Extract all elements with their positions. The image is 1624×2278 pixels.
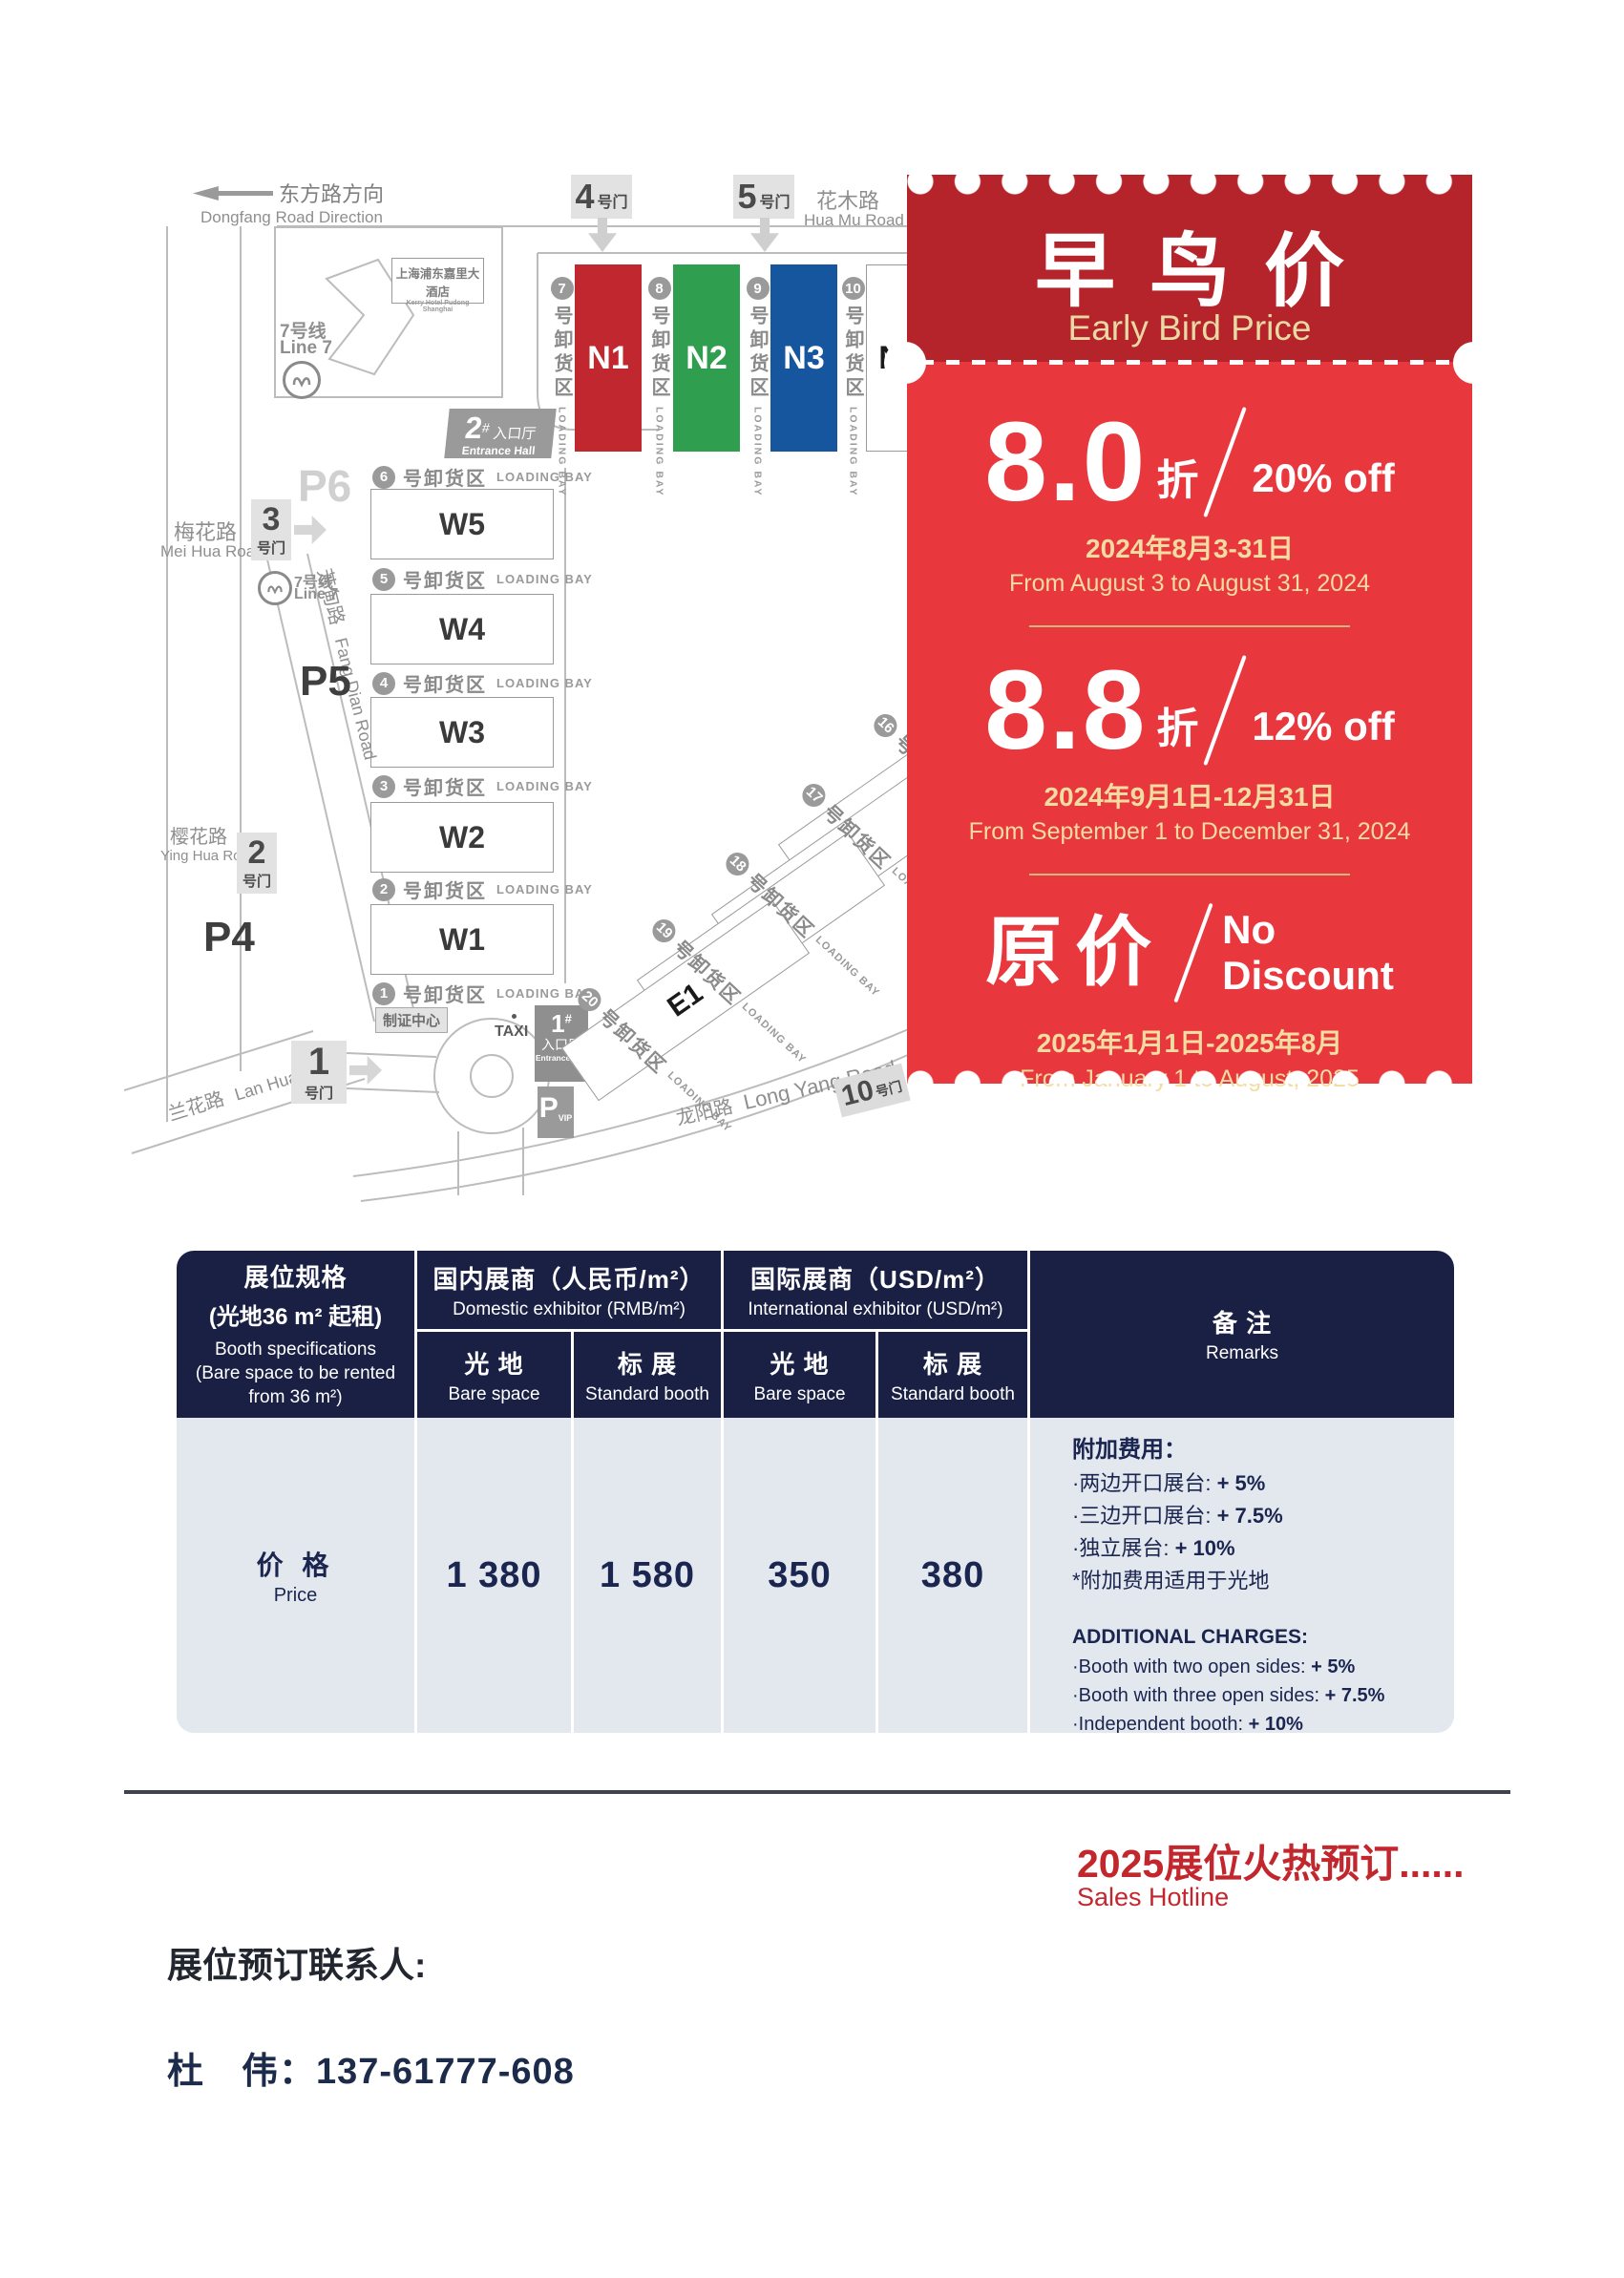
loading-bay-3-number: 3 [372, 775, 395, 798]
huamu-road-label-en: Hua Mu Road [804, 211, 904, 230]
venue-map: 东方路方向 Dongfang Road Direction 4号门 5号门 花木… [124, 134, 979, 1203]
sales-hotline-title-zh: 2025展位火热预订...... [1077, 1831, 1465, 1888]
metro-logo-icon [258, 571, 292, 605]
sub-intl-standard: 标 展 Standard booth [878, 1332, 1030, 1418]
gate-1: 1号门 [291, 1041, 347, 1104]
remarks-zh-note: *附加费用适用于光地 [1072, 1565, 1270, 1597]
tier-2-date-zh: 2024年9月1日-12月31日 [907, 778, 1472, 815]
early-bird-title-en: Early Bird Price [907, 308, 1472, 348]
standard-en: Standard booth [891, 1384, 1015, 1405]
intl-en: International exhibitor (USD/m²) [748, 1299, 1002, 1320]
contact-phone: 杜 伟：137-61777-608 [167, 2041, 575, 2094]
gate-10-suffix: 号门 [874, 1077, 904, 1102]
tier-1-discount: 8.0 [984, 406, 1147, 518]
loading-bay-4-number: 4 [372, 672, 395, 695]
slash-divider [1204, 655, 1247, 766]
price-domestic-bare: 1 380 [417, 1418, 574, 1733]
hall-w2: W2 [370, 802, 554, 873]
loading-bay-5-number: 5 [372, 568, 395, 591]
loading-bay-8-label-en: LOADING BAY [654, 407, 665, 497]
remarks-en-item: ·Booth with three open sides: + 7.5% [1072, 1681, 1384, 1710]
standard-en: Standard booth [585, 1384, 709, 1405]
tier-1-date-en: From August 3 to August 31, 2024 [907, 567, 1472, 601]
loading-bay-9-label-en: LOADING BAY [752, 407, 764, 497]
bare-zh: 光 地 [770, 1345, 829, 1381]
ticket-scallop-top [907, 175, 1472, 196]
remarks-zh-item: ·独立展台: + 10% [1072, 1532, 1235, 1565]
ticket-notch-right [1453, 342, 1495, 384]
group-international-header: 国际展商（USD/m²） International exhibitor (US… [724, 1251, 1030, 1332]
col-booth-specs-header: 展位规格 (光地36 m² 起租) Booth specifications (… [177, 1251, 417, 1418]
gold-divider [1029, 874, 1350, 875]
ticket-body: 8.0 折 20% off 2024年8月3-31日 From August 3… [907, 362, 1472, 1084]
tier-3-off-line2: Discount [1222, 953, 1394, 998]
hall-w1: W1 [370, 904, 554, 975]
meihua-road-label-en: Mei Hua Road [160, 542, 264, 561]
vip-parking-sub: VIP [559, 1113, 573, 1123]
group-domestic-header: 国内展商（人民币/m²） Domestic exhibitor (RMB/m²) [417, 1251, 724, 1332]
tier-1-off: 20% off [1252, 455, 1394, 501]
hash-mark: # [481, 420, 490, 435]
price-intl-bare: 350 [724, 1418, 878, 1733]
badge-certificate-center: 制证中心 [375, 1007, 448, 1033]
loading-bay-2-label-en: LOADING BAY [496, 882, 593, 896]
loading-bay-4-label-en: LOADING BAY [496, 676, 593, 690]
entrance-hall-2-badge: 2# 入口厅 Entrance Hall [444, 409, 556, 458]
loading-bay-1-number: 1 [372, 982, 395, 1005]
entrance-2-label-en: Entrance Hall [444, 445, 552, 456]
early-bird-ticket: 早鸟价 Early Bird Price 8.0 折 20% off 2024年… [907, 175, 1472, 1084]
loading-bay-8-label-zh: 号卸货区 [645, 306, 673, 401]
price-row-label: 价 格 Price [177, 1418, 417, 1733]
remarks-en-item: ·Booth with two open sides: + 5% [1072, 1653, 1355, 1681]
dongfang-road-label-zh: 东方路方向 [279, 178, 384, 208]
tier-2-off: 12% off [1252, 704, 1394, 749]
loading-bay-2-label-zh: 号卸货区 [403, 875, 487, 903]
sub-intl-bare: 光 地 Bare space [724, 1332, 878, 1418]
taxi-dot [512, 1014, 517, 1019]
tier-2-discount: 8.8 [984, 654, 1147, 767]
tier-2: 8.8 折 12% off [907, 652, 1472, 769]
gate-10-number: 10 [839, 1076, 877, 1111]
spec-en1: Booth specifications [188, 1339, 403, 1362]
gate-5: 5号门 [733, 175, 794, 219]
loading-bay-10-label-en: LOADING BAY [848, 407, 859, 497]
remarks-zh-item: ·两边开口展台: + 5% [1072, 1467, 1265, 1500]
bare-en: Bare space [448, 1384, 539, 1405]
parking-p4: P4 [203, 917, 255, 959]
tier-3-date-zh: 2025年1月1日-2025年8月 [907, 1024, 1472, 1062]
entrance-1-number: 1 [551, 1009, 564, 1038]
col-remarks-header: 备 注 Remarks [1030, 1251, 1454, 1418]
vip-parking-p: P [539, 1092, 559, 1124]
taxi-label: TAXI [495, 1023, 528, 1041]
price-domestic-standard: 1 580 [574, 1418, 724, 1733]
remarks-en-title: ADDITIONAL CHARGES: [1072, 1622, 1308, 1653]
standard-zh: 标 展 [923, 1345, 982, 1381]
kerry-hotel-label: 上海浦东嘉里大酒店 Kerry Hotel Pudong Shanghai [391, 258, 484, 304]
remarks-en-item: ·Independent booth: + 10% [1072, 1710, 1303, 1733]
gate-4-number: 4 [575, 179, 594, 214]
parking-p5: P5 [300, 661, 351, 703]
tier-3-label: 原价 [985, 915, 1165, 991]
loading-bay-7-number: 7 [551, 277, 574, 300]
tier-1: 8.0 折 20% off [907, 404, 1472, 520]
entrance-2-label-zh: 入口厅 [492, 426, 537, 442]
price-label-en: Price [274, 1585, 318, 1607]
remarks-zh-item: ·三边开口展台: + 7.5% [1072, 1500, 1283, 1532]
loading-bay-5-label-en: LOADING BAY [496, 572, 593, 586]
gate-3: 3号门 [251, 499, 291, 560]
bare-en: Bare space [753, 1384, 845, 1405]
loading-bay-1-label-zh: 号卸货区 [403, 980, 487, 1007]
loading-bay-8-number: 8 [648, 277, 671, 300]
loading-bay-2-number: 2 [372, 878, 395, 901]
tier-1-dates: 2024年8月3-31日 From August 3 to August 31,… [907, 530, 1472, 601]
gate-1-number: 1 [308, 1043, 329, 1081]
metro-logo-icon [283, 361, 321, 399]
gate-3-suffix: 号门 [257, 538, 285, 558]
remarks-en: Remarks [1206, 1343, 1278, 1364]
ticket-notch-left [884, 342, 926, 384]
hash-mark: # [565, 1011, 572, 1025]
tier-1-date-zh: 2024年8月3-31日 [907, 530, 1472, 567]
sub-domestic-standard: 标 展 Standard booth [574, 1332, 724, 1418]
loading-bay-3-label-zh: 号卸货区 [403, 772, 487, 800]
price-intl-standard: 380 [878, 1418, 1030, 1733]
pricing-table: 展位规格 (光地36 m² 起租) Booth specifications (… [177, 1251, 1454, 1733]
intl-zh: 国际展商（USD/m²） [750, 1260, 1001, 1296]
loading-bay-3-label-en: LOADING BAY [496, 779, 593, 793]
spec-zh2: (光地36 m² 起租) [209, 1297, 382, 1331]
dongfang-road-label-en: Dongfang Road Direction [200, 208, 383, 227]
tier-3-off-line1: No [1222, 907, 1276, 952]
parking-p6: P6 [298, 464, 351, 508]
loading-bay-10-label-zh: 号卸货区 [839, 306, 867, 401]
early-bird-title-zh: 早鸟价 [907, 207, 1472, 323]
sales-hotline-title-en: Sales Hotline [1077, 1883, 1229, 1912]
gate-5-suffix: 号门 [760, 189, 791, 212]
gate-4-suffix: 号门 [598, 189, 628, 212]
loading-bay-4-label-zh: 号卸货区 [403, 669, 487, 697]
gate-5-number: 5 [737, 179, 756, 214]
sub-domestic-bare: 光 地 Bare space [417, 1332, 574, 1418]
loading-bay-10-number: 10 [842, 277, 865, 300]
tier-3: 原价 NoDiscount [907, 900, 1472, 1005]
slash-divider [1204, 407, 1247, 517]
vip-parking-badge: PVIP [538, 1086, 574, 1138]
hall-n1: N1 [575, 264, 642, 452]
spec-en2: (Bare space to be rented from 36 m²) [188, 1362, 403, 1409]
gate-3-number: 3 [263, 503, 281, 536]
loading-bay-7-label-zh: 号卸货区 [548, 306, 576, 401]
contact-person-label: 展位预订联系人: [167, 1936, 426, 1988]
remarks-zh: 备 注 [1213, 1304, 1272, 1339]
hotel-name-en: Kerry Hotel Pudong Shanghai [392, 300, 483, 313]
tier-2-dates: 2024年9月1日-12月31日 From September 1 to Dec… [907, 778, 1472, 849]
gate-4: 4号门 [571, 175, 632, 219]
hall-w5: W5 [370, 489, 554, 559]
remarks-cell: 附加费用： ·两边开口展台: + 5% ·三边开口展台: + 7.5% ·独立展… [1030, 1418, 1454, 1733]
tier-2-date-en: From September 1 to December 31, 2024 [907, 815, 1472, 849]
hotel-name-zh: 上海浦东嘉里大酒店 [392, 264, 483, 300]
gate-2: 2号门 [237, 833, 277, 894]
price-label-zh: 价 格 [257, 1545, 335, 1583]
loading-bay-9-label-zh: 号卸货区 [744, 306, 771, 401]
loading-bay-6-number: 6 [372, 466, 395, 489]
loading-bay-9-number: 9 [747, 277, 770, 300]
metro-line7-label-en: Line 7 [280, 338, 332, 359]
loading-bay-5-label-zh: 号卸货区 [403, 565, 487, 593]
slash-divider [1173, 903, 1213, 1003]
hall-n3: N3 [770, 264, 837, 452]
ticket-scallop-bottom [907, 1061, 1472, 1084]
hall-w3: W3 [370, 697, 554, 768]
gold-divider [1029, 625, 1350, 627]
tier-1-unit: 折 [1156, 446, 1198, 507]
gate-1-suffix: 号门 [305, 1083, 333, 1103]
domestic-zh: 国内展商（人民币/m²） [432, 1260, 705, 1296]
standard-zh: 标 展 [618, 1345, 677, 1381]
gate-2-suffix: 号门 [243, 871, 271, 891]
loading-bay-6-label-en: LOADING BAY [496, 470, 593, 484]
hall-n2: N2 [673, 264, 740, 452]
remarks-zh-title: 附加费用： [1072, 1433, 1187, 1467]
yinghua-road-label-zh: 樱花路 [170, 821, 227, 849]
spec-zh1: 展位规格 [243, 1258, 347, 1294]
hall-w4: W4 [370, 594, 554, 664]
tier-2-unit: 折 [1156, 694, 1198, 755]
domestic-en: Domestic exhibitor (RMB/m²) [453, 1299, 685, 1320]
ticket-perforation [920, 360, 1459, 365]
loading-bay-6-label-zh: 号卸货区 [403, 463, 487, 491]
section-divider [124, 1790, 1510, 1794]
gate-2-number: 2 [248, 836, 266, 869]
bare-zh: 光 地 [464, 1345, 523, 1381]
